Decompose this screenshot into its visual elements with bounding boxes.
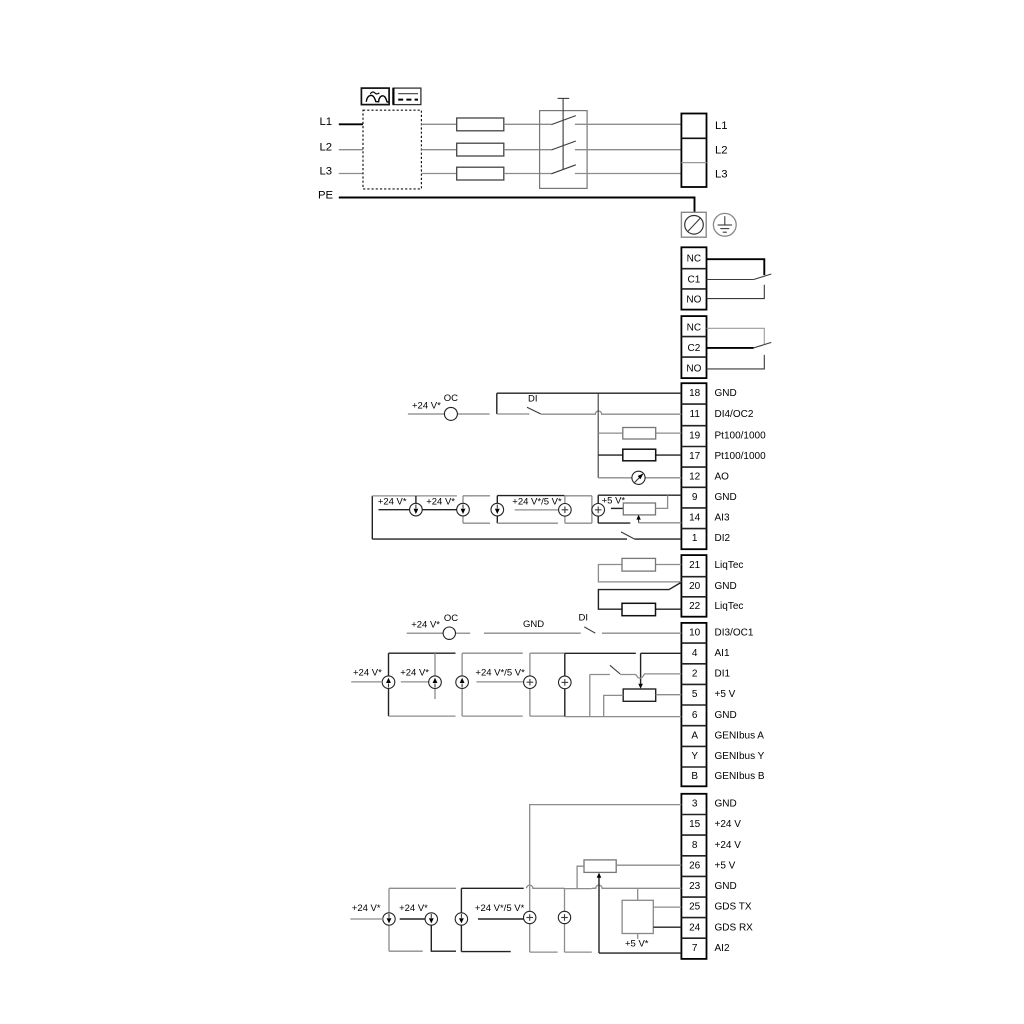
svg-text:GND: GND bbox=[715, 799, 737, 810]
svg-text:12: 12 bbox=[689, 472, 701, 483]
svg-text:DI: DI bbox=[579, 613, 589, 624]
svg-text:+24 V*: +24 V* bbox=[412, 401, 441, 412]
svg-text:B: B bbox=[691, 771, 698, 782]
svg-text:2: 2 bbox=[692, 669, 698, 680]
svg-text:8: 8 bbox=[692, 840, 698, 851]
svg-text:GND: GND bbox=[715, 881, 737, 892]
svg-text:LiqTec: LiqTec bbox=[715, 601, 744, 612]
svg-text:+24 V*: +24 V* bbox=[399, 903, 428, 914]
svg-text:NO: NO bbox=[686, 364, 701, 375]
svg-text:7: 7 bbox=[692, 943, 698, 954]
svg-text:DI1: DI1 bbox=[715, 669, 731, 680]
svg-text:GENIbus Y: GENIbus Y bbox=[715, 751, 765, 762]
svg-text:+24 V*/5 V*: +24 V*/5 V* bbox=[512, 497, 562, 508]
svg-text:10: 10 bbox=[689, 628, 701, 639]
svg-text:+24 V*/5 V*: +24 V*/5 V* bbox=[475, 667, 525, 678]
svg-text:Pt100/1000: Pt100/1000 bbox=[715, 430, 767, 441]
svg-text:NC: NC bbox=[687, 254, 701, 265]
svg-text:17: 17 bbox=[689, 451, 701, 462]
svg-text:Pt100/1000: Pt100/1000 bbox=[715, 451, 767, 462]
svg-text:AI3: AI3 bbox=[715, 513, 730, 524]
svg-text:AI2: AI2 bbox=[715, 943, 730, 954]
svg-text:+24 V: +24 V bbox=[715, 840, 742, 851]
svg-text:+5 V: +5 V bbox=[715, 860, 736, 871]
svg-text:+24 V*: +24 V* bbox=[411, 620, 440, 631]
svg-text:L3: L3 bbox=[320, 165, 333, 177]
svg-text:4: 4 bbox=[692, 648, 698, 659]
svg-text:+5 V: +5 V bbox=[715, 689, 736, 700]
svg-text:NO: NO bbox=[686, 295, 701, 306]
svg-text:+5 V*: +5 V* bbox=[602, 495, 626, 506]
svg-text:+24 V*: +24 V* bbox=[352, 903, 381, 914]
svg-text:DI3/OC1: DI3/OC1 bbox=[715, 628, 754, 639]
svg-text:L1: L1 bbox=[715, 120, 728, 132]
svg-text:GENIbus A: GENIbus A bbox=[715, 731, 765, 742]
svg-text:26: 26 bbox=[689, 860, 701, 871]
svg-text:L2: L2 bbox=[715, 145, 728, 157]
svg-text:25: 25 bbox=[689, 902, 701, 913]
svg-text:+24 V*: +24 V* bbox=[400, 667, 429, 678]
svg-text:PE: PE bbox=[318, 190, 334, 202]
svg-text:6: 6 bbox=[692, 710, 698, 721]
svg-text:NC: NC bbox=[687, 322, 701, 333]
svg-text:GND: GND bbox=[523, 619, 544, 630]
svg-text:18: 18 bbox=[689, 388, 701, 399]
svg-text:21: 21 bbox=[689, 560, 701, 571]
svg-text:GENIbus B: GENIbus B bbox=[715, 771, 765, 782]
svg-text:L3: L3 bbox=[715, 169, 728, 181]
svg-text:+24 V*/5 V*: +24 V*/5 V* bbox=[475, 903, 525, 914]
svg-text:+24 V: +24 V bbox=[715, 819, 742, 830]
svg-text:3: 3 bbox=[692, 799, 698, 810]
svg-text:+24 V*: +24 V* bbox=[426, 497, 455, 508]
svg-text:A: A bbox=[691, 731, 698, 742]
svg-text:5: 5 bbox=[692, 689, 698, 700]
svg-text:C2: C2 bbox=[688, 343, 701, 354]
svg-text:GND: GND bbox=[715, 710, 737, 721]
svg-text:14: 14 bbox=[689, 513, 701, 524]
svg-text:9: 9 bbox=[692, 492, 698, 503]
svg-text:DI4/OC2: DI4/OC2 bbox=[715, 409, 754, 420]
svg-text:11: 11 bbox=[690, 409, 701, 420]
svg-text:GDS TX: GDS TX bbox=[715, 902, 752, 913]
svg-text:GND: GND bbox=[715, 388, 737, 399]
svg-text:22: 22 bbox=[689, 601, 701, 612]
svg-text:OC: OC bbox=[444, 393, 458, 404]
svg-text:1: 1 bbox=[692, 533, 698, 544]
svg-text:24: 24 bbox=[689, 922, 701, 933]
svg-text:DI2: DI2 bbox=[715, 533, 731, 544]
svg-text:AI1: AI1 bbox=[715, 648, 730, 659]
svg-text:GND: GND bbox=[715, 492, 737, 503]
svg-text:15: 15 bbox=[689, 819, 701, 830]
svg-text:Y: Y bbox=[691, 751, 698, 762]
svg-text:+24 V*: +24 V* bbox=[378, 497, 407, 508]
svg-text:GND: GND bbox=[715, 581, 737, 592]
svg-text:19: 19 bbox=[689, 430, 701, 441]
svg-text:OC: OC bbox=[444, 613, 458, 624]
svg-text:L2: L2 bbox=[320, 142, 333, 154]
svg-text:LiqTec: LiqTec bbox=[715, 560, 744, 571]
svg-text:20: 20 bbox=[689, 581, 701, 592]
svg-text:C1: C1 bbox=[688, 274, 701, 285]
svg-text:AO: AO bbox=[715, 472, 730, 483]
svg-text:23: 23 bbox=[689, 881, 701, 892]
svg-text:+5 V*: +5 V* bbox=[625, 938, 649, 949]
svg-text:DI: DI bbox=[528, 394, 538, 405]
svg-text:L1: L1 bbox=[320, 116, 333, 128]
svg-text:GDS RX: GDS RX bbox=[715, 922, 754, 933]
svg-text:+24 V*: +24 V* bbox=[353, 667, 382, 678]
